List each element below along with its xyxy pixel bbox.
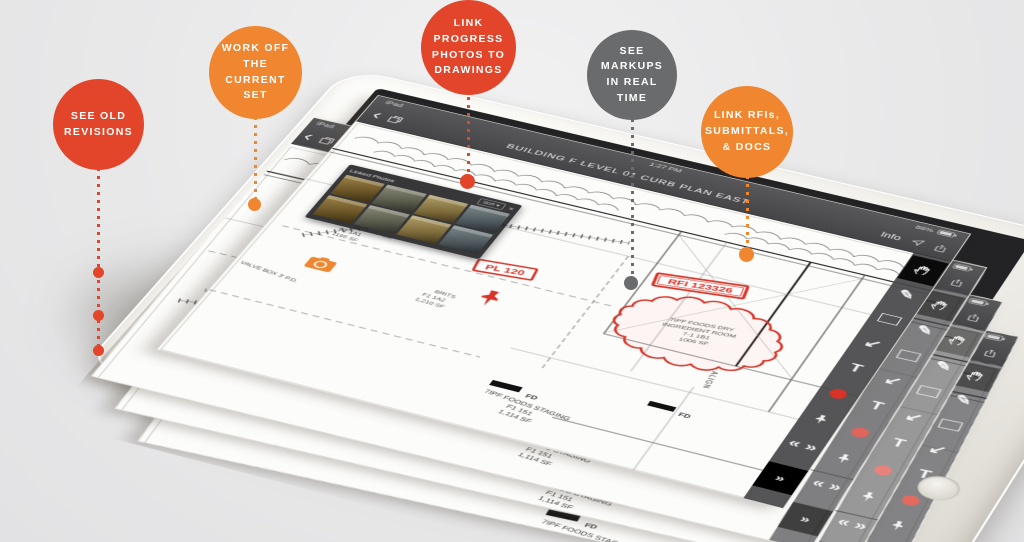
share-icon[interactable] xyxy=(948,277,967,288)
revision-dot-1 xyxy=(93,267,104,278)
connector-link-rfis xyxy=(746,176,749,250)
revision-dot-3 xyxy=(93,345,104,356)
connector-link-photos xyxy=(467,89,470,177)
align-label: ALIGN xyxy=(700,370,719,389)
ipad-screen: iPad 1:27 PM 86% ‹ BUILDING F LEVEL 01 C… xyxy=(46,77,1024,542)
connector-see-markups xyxy=(631,119,634,279)
back-chevron-icon[interactable]: ‹ xyxy=(369,110,385,121)
link-photos-endpoint-dot xyxy=(460,174,475,189)
close-icon[interactable]: × xyxy=(507,206,516,212)
share-icon[interactable] xyxy=(931,243,950,254)
fd-label: FD xyxy=(677,412,692,420)
work-off-endpoint-dot xyxy=(248,198,261,211)
back-chevron-icon[interactable]: ‹ xyxy=(300,131,316,142)
room-label-brits: BRITS F1 1A2 1,210 SF xyxy=(413,287,457,310)
fd-label: FD xyxy=(524,394,539,402)
location-arrow-icon[interactable] xyxy=(908,237,927,247)
marketing-scene: iPad 1:27 PM 86% ‹ BUILDING F LEVEL 01 C… xyxy=(0,0,1024,542)
see-markups-endpoint-dot xyxy=(624,276,638,290)
link-rfis-endpoint-dot xyxy=(739,247,754,262)
callout-link-progress-photos: LINK PROGRESS PHOTOS TO DRAWINGS xyxy=(421,0,516,95)
connector-work-off-set xyxy=(254,117,257,201)
callout-see-old-revisions: SEE OLD REVISIONS xyxy=(53,79,144,170)
pushpin-marker[interactable] xyxy=(476,289,503,307)
share-icon[interactable] xyxy=(981,347,1000,358)
camera-icon[interactable] xyxy=(303,255,338,273)
valve-label: VALVE BOX 3' P.D. xyxy=(238,261,299,284)
info-button[interactable]: Info xyxy=(879,230,904,242)
callout-work-off-current-set: WORK OFF THE CURRENT SET xyxy=(209,26,302,119)
callout-see-markups: SEE MARKUPS IN REAL TIME xyxy=(587,30,677,120)
photo-stamp-pl120[interactable]: PL 120 xyxy=(473,259,537,280)
share-icon[interactable] xyxy=(964,312,983,323)
rfi-stamp[interactable]: RFI 123326 xyxy=(653,273,749,299)
sheets-icon[interactable] xyxy=(385,114,406,125)
connector-see-old-revisions xyxy=(97,168,100,354)
revision-dot-2 xyxy=(93,310,104,321)
fd-label: FD xyxy=(583,523,598,531)
callout-link-rfis: LINK RFIs, SUBMITTALS, & DOCS xyxy=(701,86,793,178)
room-label-staging: 7IPF FOODS STAGING F1 151 1,114 SF xyxy=(470,389,572,434)
